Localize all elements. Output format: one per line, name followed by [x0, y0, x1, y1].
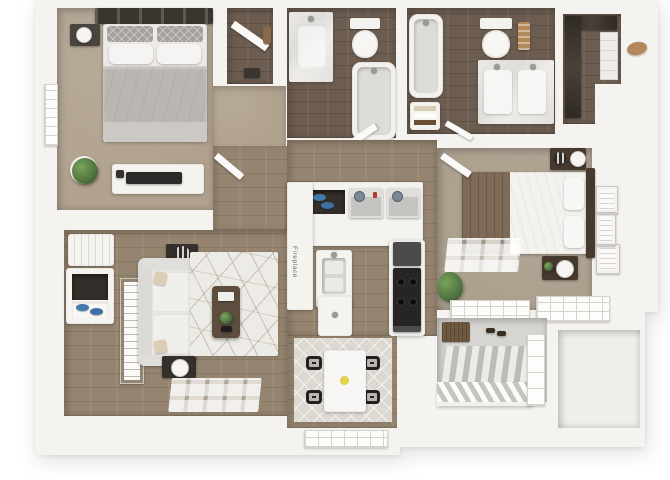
wood-panel	[263, 26, 271, 44]
linen-shelf	[410, 102, 440, 130]
faucet	[332, 312, 338, 318]
towel	[414, 106, 436, 111]
pillow	[109, 44, 153, 64]
shower-basin	[296, 24, 326, 68]
headboard	[586, 168, 595, 258]
cabinet-dark	[393, 242, 421, 266]
door-bedroom-1	[214, 153, 245, 180]
sink-double	[322, 258, 346, 294]
faucet	[423, 20, 429, 26]
faucet	[530, 64, 536, 70]
room-bathroom-1	[287, 8, 396, 138]
plant	[437, 272, 463, 302]
bathtub	[409, 14, 443, 98]
bed-queen	[103, 24, 207, 142]
toilet-bowl	[482, 30, 510, 58]
throw-pillow	[153, 339, 168, 354]
sliding-glass-door	[527, 334, 545, 406]
hall-wood	[213, 146, 287, 230]
sandal	[486, 328, 495, 333]
dining-chair	[364, 390, 380, 404]
sandal	[497, 331, 506, 336]
sofa-back	[138, 258, 152, 366]
books	[218, 292, 234, 301]
decor-tray	[221, 326, 232, 332]
toilet-tank	[480, 18, 512, 29]
room-bedroom-1	[57, 8, 213, 210]
table-lamp	[554, 152, 566, 164]
speaker-decor	[116, 170, 124, 178]
washer-dial	[354, 191, 365, 202]
pillow	[157, 44, 201, 64]
cabinet-door	[518, 70, 546, 114]
wall-frame	[596, 244, 620, 274]
balcony-railing	[437, 382, 533, 406]
closet-shelving	[600, 32, 618, 80]
counter-east	[389, 240, 425, 336]
toilet-bowl	[352, 30, 378, 58]
pillow	[564, 216, 584, 248]
blue-shoes	[76, 304, 89, 311]
accent-pillow	[107, 26, 153, 42]
table-lamp	[556, 260, 574, 278]
toilet	[350, 18, 380, 58]
fireplace-column: Fireplace	[287, 182, 313, 310]
room-closet-1	[227, 8, 273, 84]
side-table	[162, 356, 196, 378]
room-storage	[558, 330, 640, 428]
table-plant	[220, 312, 232, 324]
bathtub-basin	[414, 19, 438, 93]
throw-pillow	[153, 271, 168, 286]
dining-chair	[306, 356, 322, 370]
bench-cabinet	[68, 234, 114, 266]
wall-frame	[596, 186, 618, 214]
plant	[72, 158, 98, 184]
washer	[349, 188, 383, 218]
hall-carpet	[213, 86, 286, 146]
bedroom-1-window	[44, 84, 58, 146]
basket-decor	[76, 27, 92, 43]
sink-basin	[325, 261, 343, 274]
striped-rug	[441, 346, 532, 384]
entry-closet	[66, 268, 114, 324]
pillow	[564, 178, 584, 210]
fireplace-label: Fireplace	[291, 246, 298, 278]
tv-console	[112, 164, 204, 194]
dining-bay-window	[304, 430, 388, 448]
blue-towel	[313, 194, 326, 201]
washer-knob	[373, 192, 377, 198]
room-walk-in-closet	[563, 14, 621, 124]
sofa	[138, 258, 196, 366]
table-lamp	[570, 151, 586, 167]
faucet	[308, 16, 314, 22]
dining-chair	[306, 390, 322, 404]
small-plant	[544, 262, 553, 271]
nightstand	[542, 256, 578, 280]
hanging-clothes	[565, 16, 581, 118]
blue-towel	[321, 202, 334, 209]
faucet	[371, 68, 377, 74]
storage-box	[244, 68, 260, 78]
sink-basin	[325, 278, 343, 291]
window-light	[444, 238, 522, 272]
dining-table	[324, 350, 366, 412]
towel	[414, 120, 436, 125]
shower-vanity-marble	[289, 12, 333, 82]
room-bathroom-2	[407, 8, 555, 134]
shoe-shelf	[72, 302, 108, 318]
floorplan-3d-render: Fireplace	[0, 0, 670, 480]
room-dining	[287, 336, 397, 428]
tv	[126, 172, 182, 184]
faucet	[331, 252, 337, 258]
toilet	[480, 18, 512, 58]
towel-rack-gold	[518, 22, 530, 50]
dining-chair	[364, 356, 380, 370]
dryer	[387, 188, 420, 218]
towel	[414, 113, 436, 118]
dryer-dial	[392, 191, 403, 202]
nightstand	[70, 24, 100, 46]
nightstand	[550, 148, 586, 170]
bed-throw	[103, 122, 207, 142]
sofa-arm	[142, 258, 192, 270]
flower-centerpiece	[340, 376, 349, 385]
window-light	[168, 378, 262, 412]
toilet-tank	[350, 18, 380, 29]
doormat	[442, 322, 470, 342]
wall-frame	[596, 212, 616, 246]
room-living	[64, 230, 287, 416]
blue-shoes	[90, 308, 103, 315]
coffee-table	[212, 286, 240, 338]
headboard-shelf	[95, 8, 213, 24]
coats-dark	[72, 274, 108, 300]
counter-south	[318, 296, 352, 336]
accent-pillow	[157, 26, 203, 42]
double-sink-vanity	[478, 60, 554, 124]
bedroom-2-window	[536, 296, 610, 322]
drum-lamp	[171, 359, 189, 377]
room-kitchen: Fireplace	[287, 140, 437, 336]
faucet	[494, 64, 500, 70]
stove-cooktop	[393, 268, 421, 332]
cabinet-door	[484, 70, 512, 114]
closet-wall-notch	[595, 84, 621, 124]
